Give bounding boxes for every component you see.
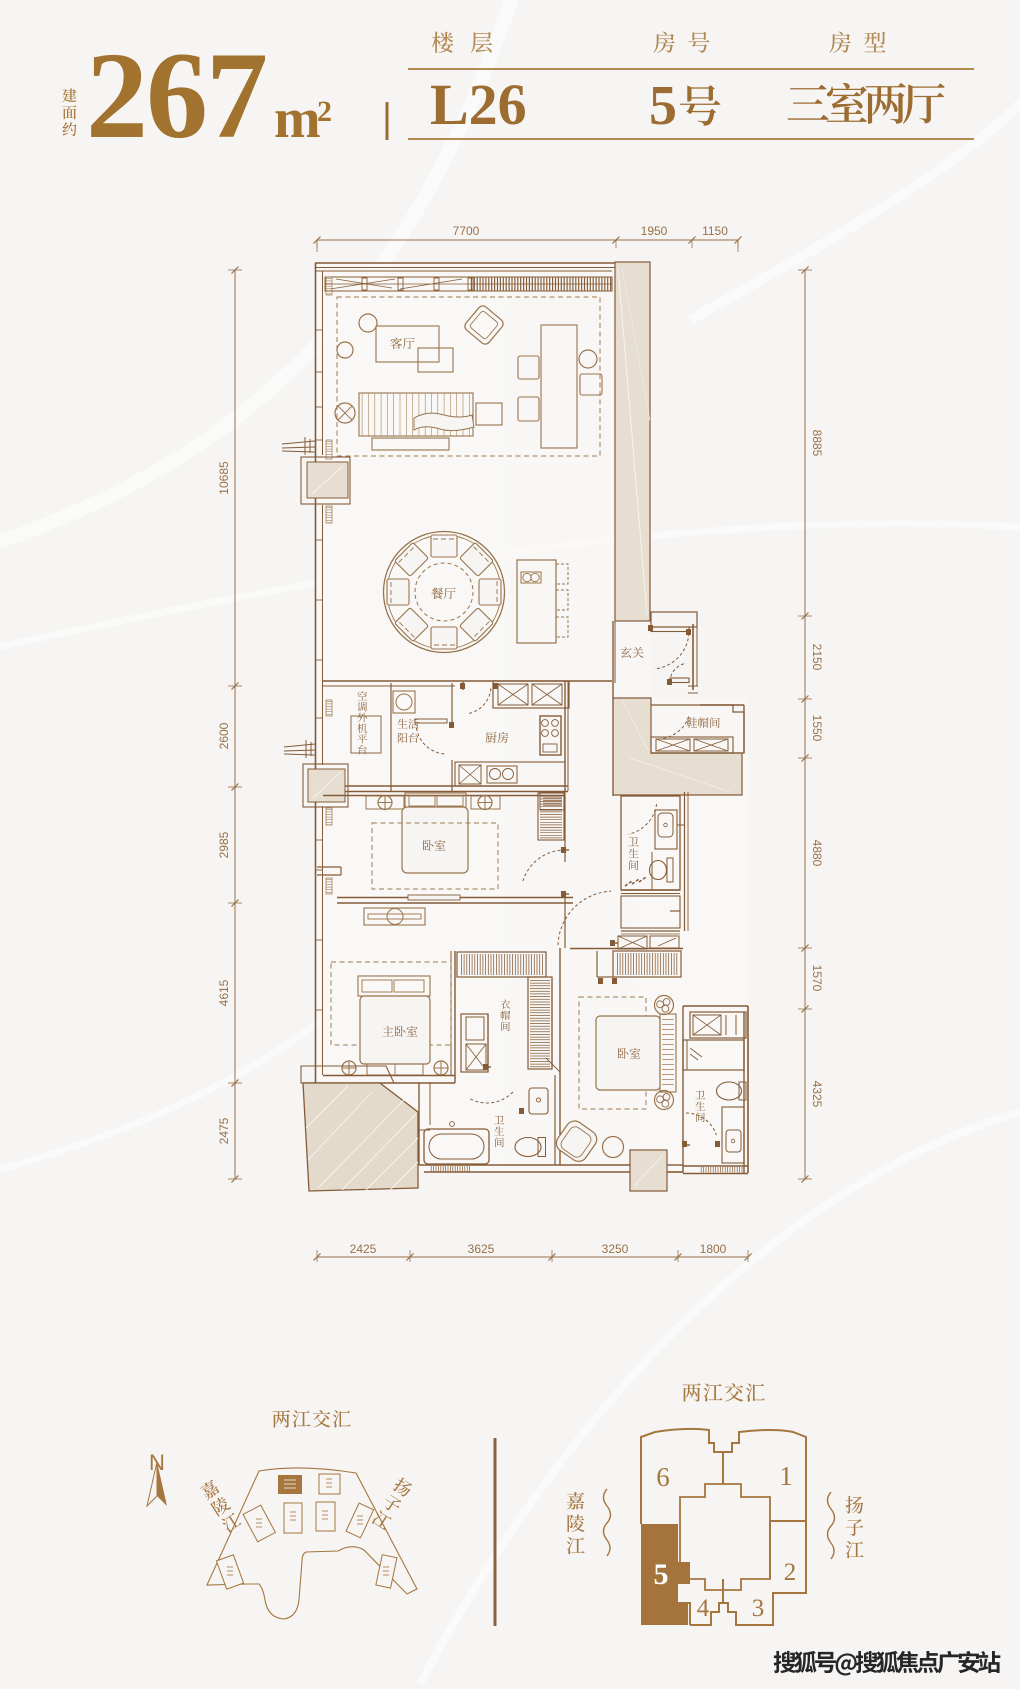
svg-text:2475: 2475 [217, 1117, 231, 1144]
svg-text:267: 267 [86, 27, 266, 164]
svg-text:3: 3 [752, 1595, 765, 1622]
svg-text:1950: 1950 [641, 224, 668, 238]
svg-text:7700: 7700 [453, 224, 480, 238]
svg-text:4: 4 [697, 1595, 710, 1622]
svg-text:L26: L26 [430, 72, 527, 137]
svg-text:4325: 4325 [810, 1081, 824, 1108]
svg-text:2: 2 [317, 95, 332, 128]
svg-text:1: 1 [779, 1461, 793, 1491]
svg-text:m: m [274, 88, 321, 150]
svg-text:4615: 4615 [217, 979, 231, 1006]
svg-text:2985: 2985 [217, 831, 231, 858]
svg-text:6: 6 [656, 1462, 670, 1492]
svg-text:4880: 4880 [810, 840, 824, 867]
svg-text:3250: 3250 [602, 1242, 629, 1256]
svg-text:2600: 2600 [217, 722, 231, 749]
svg-text:1800: 1800 [700, 1242, 727, 1256]
svg-text:3625: 3625 [468, 1242, 495, 1256]
svg-text:1570: 1570 [810, 965, 824, 992]
svg-text:8885: 8885 [810, 430, 824, 457]
svg-text:2: 2 [784, 1559, 797, 1586]
svg-text:1150: 1150 [702, 224, 728, 238]
svg-text:10685: 10685 [217, 461, 231, 495]
svg-text:2425: 2425 [350, 1242, 377, 1256]
svg-text:5: 5 [649, 75, 677, 137]
svg-text:2150: 2150 [810, 644, 824, 671]
svg-text:1550: 1550 [810, 715, 824, 742]
svg-text:5: 5 [654, 1558, 669, 1591]
